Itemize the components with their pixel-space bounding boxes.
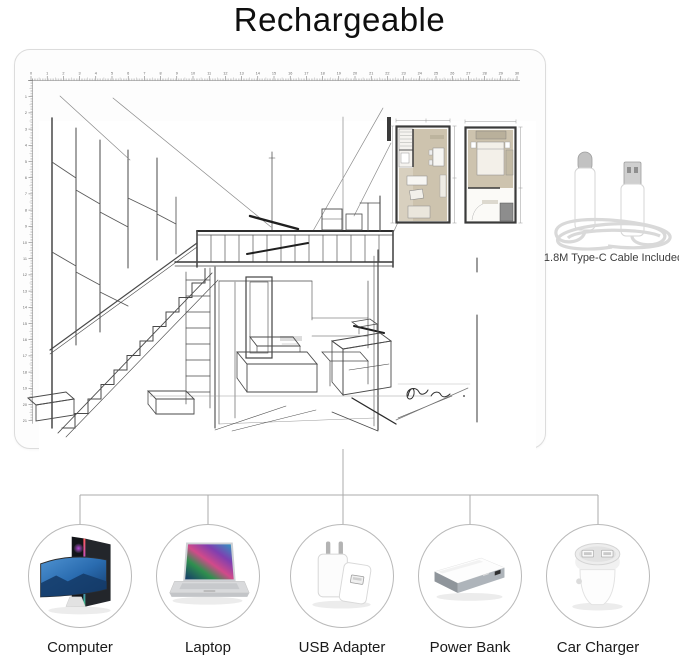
power-source-laptop: Laptop: [156, 524, 260, 656]
power-source-label: Car Charger: [546, 639, 650, 656]
page-title: Rechargeable: [0, 0, 679, 40]
power-source-label: USB Adapter: [290, 639, 394, 656]
power-source-label: Laptop: [156, 639, 260, 656]
desktop-computer-icon: [28, 524, 132, 628]
power-source-label: Computer: [28, 639, 132, 656]
usb-cable-illustration: [556, 152, 670, 249]
cable-coils: [556, 220, 670, 250]
drawing-paper: [39, 121, 536, 481]
power-source-power-bank: Power Bank: [418, 524, 522, 656]
type-c-connector-icon: [575, 152, 595, 230]
cable-caption: 1.8M Type-C Cable Included: [540, 252, 679, 264]
power-source-car-charger: Car Charger: [546, 524, 650, 656]
light-pad: [14, 49, 546, 449]
power-bank-icon: [418, 524, 522, 628]
power-source-computer: Computer: [28, 524, 132, 656]
usb-wall-adapter-icon: [290, 524, 394, 628]
car-charger-icon: [546, 524, 650, 628]
power-source-label: Power Bank: [418, 639, 522, 656]
power-source-usb-adapter: USB Adapter: [290, 524, 394, 656]
laptop-icon: [156, 524, 260, 628]
usb-a-connector-icon: [621, 162, 644, 236]
